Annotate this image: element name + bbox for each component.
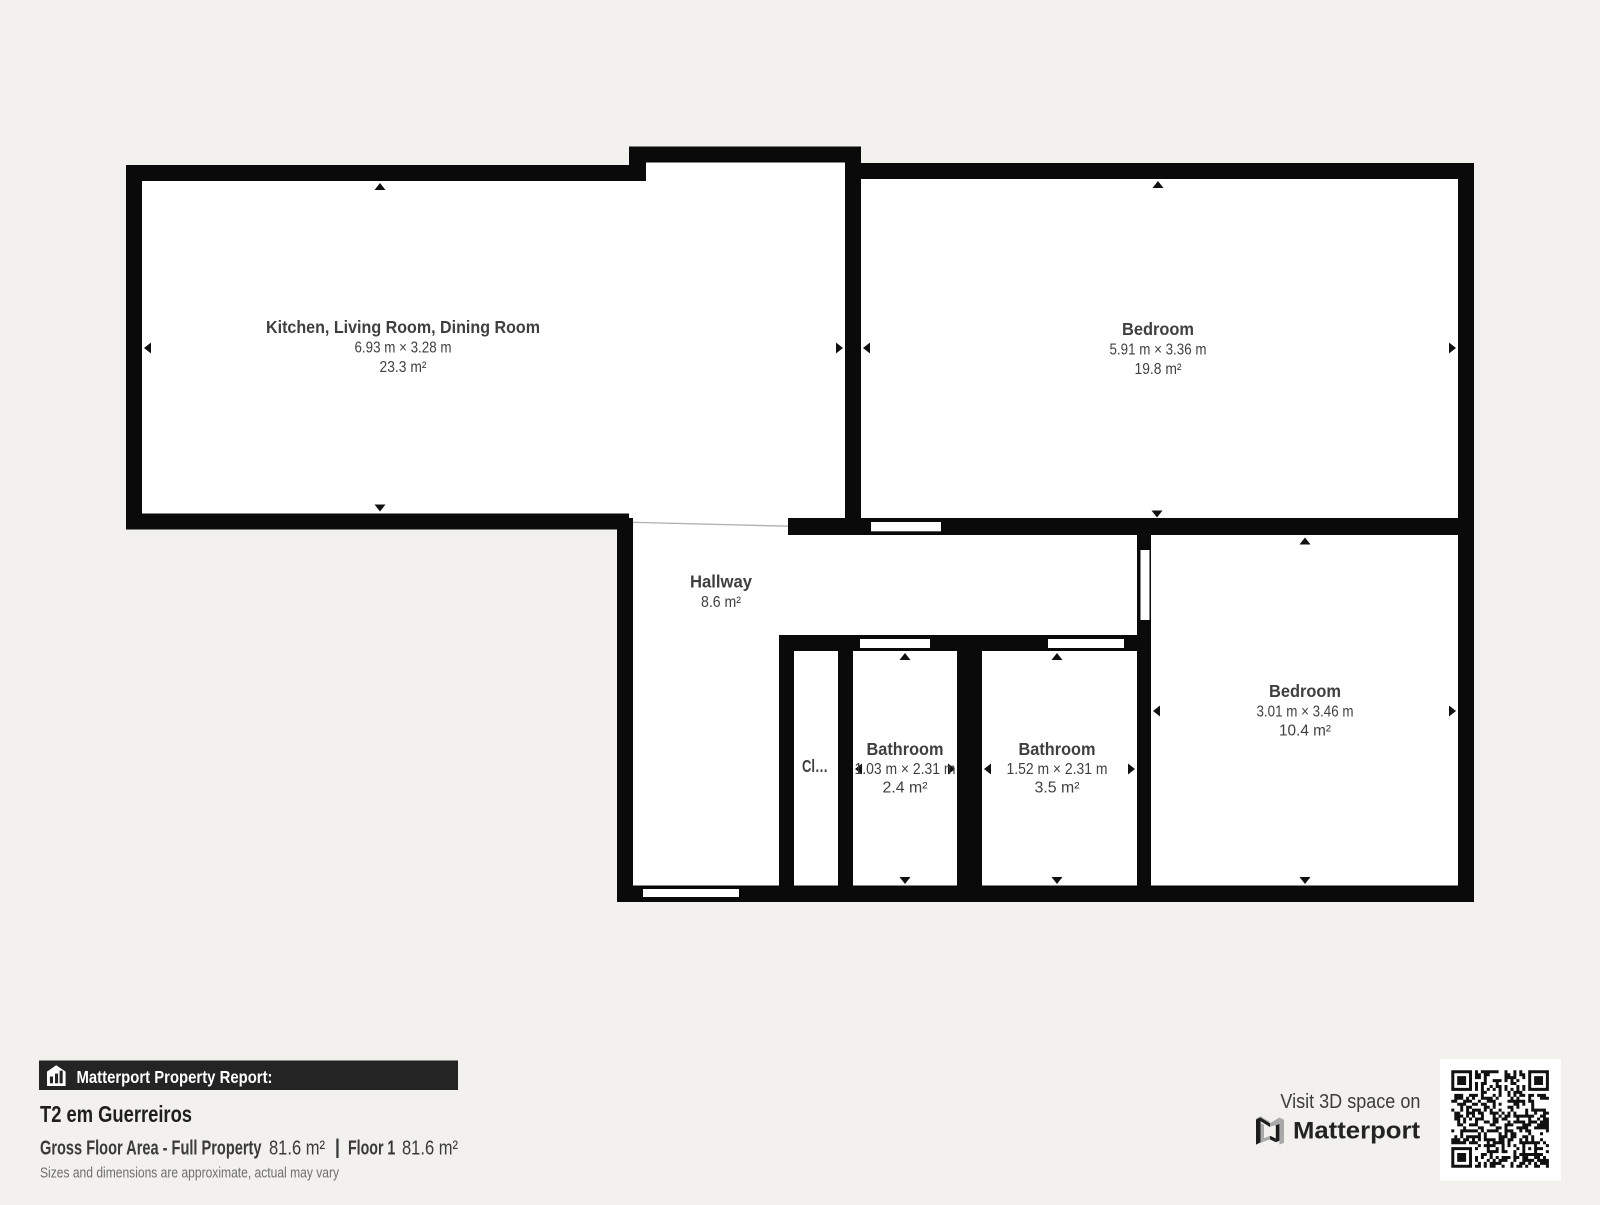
svg-text:Visit 3D space on: Visit 3D space on xyxy=(1280,1091,1420,1113)
svg-text:10.4 m²: 10.4 m² xyxy=(1279,723,1331,740)
svg-text:Matterport Property Report:: Matterport Property Report: xyxy=(77,1067,273,1087)
svg-text:1.03 m × 2.31 m: 1.03 m × 2.31 m xyxy=(855,761,956,778)
svg-text:8.6 m²: 8.6 m² xyxy=(701,594,741,611)
svg-text:Matterport: Matterport xyxy=(1293,1118,1420,1145)
svg-text:Kitchen, Living Room, Dining R: Kitchen, Living Room, Dining Room xyxy=(266,317,540,337)
svg-text:6.93 m × 3.28 m: 6.93 m × 3.28 m xyxy=(355,340,452,357)
svg-text:5.91 m × 3.36 m: 5.91 m × 3.36 m xyxy=(1110,342,1207,359)
svg-text:Bathroom: Bathroom xyxy=(1019,739,1096,759)
svg-text:2.4 m²: 2.4 m² xyxy=(883,780,928,797)
svg-text:1.52 m × 2.31 m: 1.52 m × 2.31 m xyxy=(1007,761,1108,778)
svg-text:81.6 m²: 81.6 m² xyxy=(269,1138,325,1160)
svg-text:Bedroom: Bedroom xyxy=(1122,319,1194,339)
svg-text:Bathroom: Bathroom xyxy=(867,739,944,759)
svg-text:23.3 m²: 23.3 m² xyxy=(380,359,427,376)
svg-text:Sizes and dimensions are appro: Sizes and dimensions are approximate, ac… xyxy=(40,1164,339,1181)
svg-text:3.01 m × 3.46 m: 3.01 m × 3.46 m xyxy=(1257,704,1354,721)
svg-text:Gross Floor Area - Full Proper: Gross Floor Area - Full Property xyxy=(40,1138,262,1160)
svg-text:81.6 m²: 81.6 m² xyxy=(402,1138,458,1160)
svg-text:3.5 m²: 3.5 m² xyxy=(1035,780,1080,797)
svg-text:Bedroom: Bedroom xyxy=(1269,681,1341,701)
svg-text:Hallway: Hallway xyxy=(690,572,752,592)
svg-text:T2 em Guerreiros: T2 em Guerreiros xyxy=(40,1101,192,1127)
svg-text:Floor 1: Floor 1 xyxy=(348,1138,395,1160)
svg-text:Cl…: Cl… xyxy=(802,756,828,776)
svg-text:19.8 m²: 19.8 m² xyxy=(1135,361,1182,378)
